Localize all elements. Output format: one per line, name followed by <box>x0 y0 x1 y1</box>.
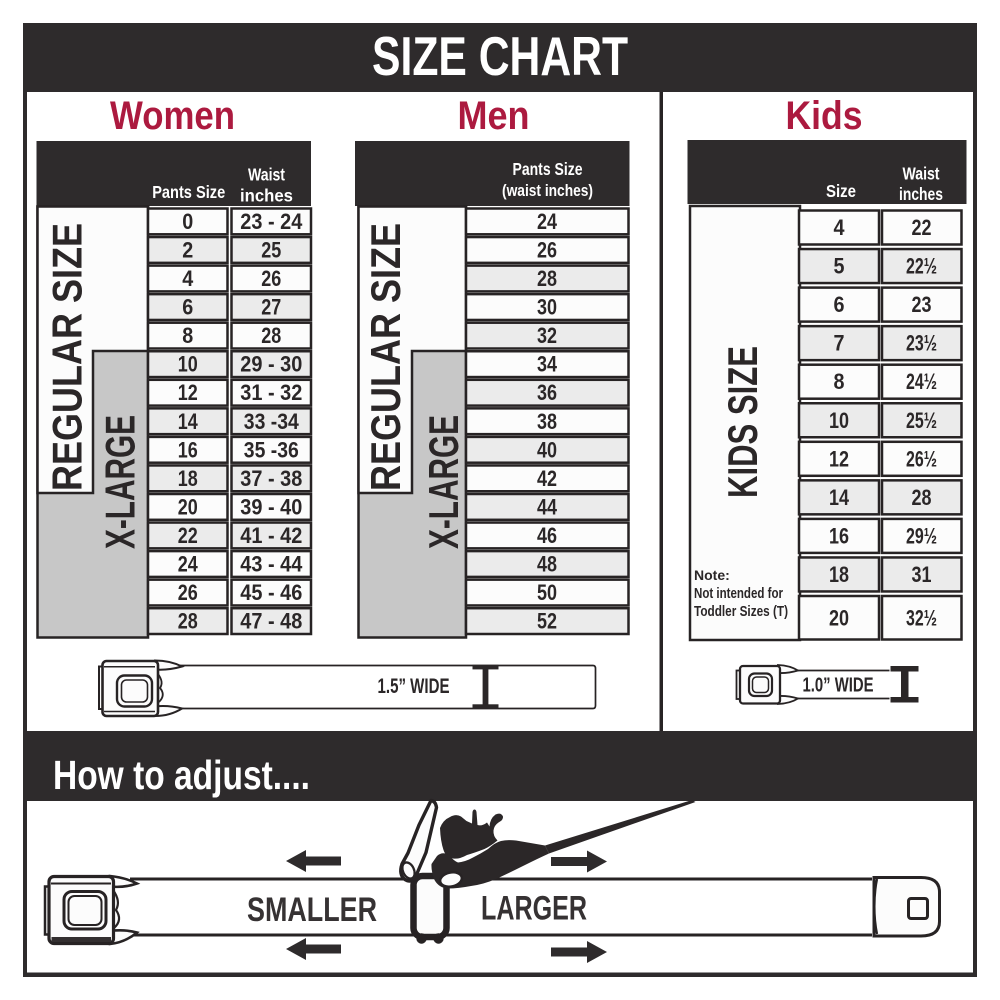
svg-text:How to adjust....: How to adjust.... <box>53 752 310 798</box>
svg-text:29 - 30: 29 - 30 <box>240 352 302 377</box>
svg-text:28: 28 <box>912 485 932 510</box>
svg-text:40: 40 <box>537 437 557 462</box>
svg-text:1.5” WIDE: 1.5” WIDE <box>378 675 450 698</box>
svg-text:22: 22 <box>912 215 932 240</box>
svg-text:Waist: Waist <box>248 165 285 185</box>
svg-text:16: 16 <box>829 523 849 548</box>
svg-text:7: 7 <box>834 331 845 356</box>
svg-text:35 -36: 35 -36 <box>244 437 299 462</box>
svg-text:18: 18 <box>178 466 198 491</box>
svg-text:6: 6 <box>834 292 845 317</box>
svg-text:SIZE CHART: SIZE CHART <box>372 25 628 87</box>
svg-text:LARGER: LARGER <box>481 890 587 928</box>
svg-text:8: 8 <box>182 323 193 348</box>
svg-text:25½: 25½ <box>906 408 937 433</box>
svg-text:REGULAR SIZE: REGULAR SIZE <box>44 223 91 491</box>
svg-text:42: 42 <box>537 466 557 491</box>
svg-text:23½: 23½ <box>906 331 937 356</box>
svg-text:25: 25 <box>261 237 281 262</box>
svg-text:37 - 38: 37 - 38 <box>240 466 302 491</box>
svg-text:X-LARGE: X-LARGE <box>97 415 144 549</box>
svg-text:Waist: Waist <box>903 164 940 184</box>
svg-text:29½: 29½ <box>906 523 937 548</box>
svg-text:28: 28 <box>537 266 557 291</box>
svg-text:10: 10 <box>829 408 849 433</box>
svg-text:Pants Size: Pants Size <box>513 159 583 179</box>
svg-text:52: 52 <box>537 609 557 634</box>
svg-text:X-LARGE: X-LARGE <box>420 415 467 549</box>
svg-text:47 - 48: 47 - 48 <box>240 609 302 634</box>
svg-text:36: 36 <box>537 380 557 405</box>
svg-text:inches: inches <box>899 184 943 204</box>
svg-text:1.0” WIDE: 1.0” WIDE <box>803 674 874 697</box>
svg-text:23: 23 <box>912 292 932 317</box>
svg-text:KIDS SIZE: KIDS SIZE <box>719 346 766 498</box>
svg-text:12: 12 <box>178 380 198 405</box>
svg-text:30: 30 <box>537 295 557 320</box>
svg-text:43 - 44: 43 - 44 <box>240 552 303 577</box>
svg-text:Women: Women <box>110 94 235 138</box>
svg-text:(waist inches): (waist inches) <box>502 181 593 200</box>
svg-text:44: 44 <box>537 494 558 519</box>
svg-text:4: 4 <box>834 215 846 240</box>
svg-text:2: 2 <box>182 237 193 262</box>
svg-text:REGULAR SIZE: REGULAR SIZE <box>362 223 409 491</box>
svg-text:24: 24 <box>178 552 199 577</box>
svg-text:12: 12 <box>829 446 849 471</box>
svg-text:10: 10 <box>178 352 198 377</box>
svg-text:31 - 32: 31 - 32 <box>240 380 302 405</box>
svg-text:27: 27 <box>261 295 281 320</box>
svg-text:5: 5 <box>834 254 845 279</box>
svg-text:32: 32 <box>537 323 557 348</box>
svg-text:6: 6 <box>182 295 193 320</box>
svg-text:39 - 40: 39 - 40 <box>240 494 302 519</box>
svg-text:41 - 42: 41 - 42 <box>240 523 302 548</box>
svg-text:26: 26 <box>261 266 281 291</box>
svg-text:SMALLER: SMALLER <box>247 891 377 929</box>
svg-text:0: 0 <box>182 209 193 234</box>
svg-text:26: 26 <box>178 580 198 605</box>
svg-text:48: 48 <box>537 552 557 577</box>
svg-text:4: 4 <box>182 266 194 291</box>
svg-text:Kids: Kids <box>786 94 863 138</box>
svg-text:inches: inches <box>240 186 293 206</box>
svg-text:Men: Men <box>458 94 530 138</box>
svg-text:20: 20 <box>829 605 849 630</box>
svg-text:46: 46 <box>537 523 557 548</box>
svg-text:26½: 26½ <box>906 446 937 471</box>
svg-text:16: 16 <box>178 437 198 462</box>
svg-text:Toddler Sizes (T): Toddler Sizes (T) <box>694 603 788 620</box>
svg-text:Pants Size: Pants Size <box>152 182 225 202</box>
svg-text:26: 26 <box>537 237 557 262</box>
svg-text:34: 34 <box>537 352 558 377</box>
svg-text:Note:: Note: <box>694 567 730 583</box>
svg-text:45 - 46: 45 - 46 <box>240 580 302 605</box>
svg-text:18: 18 <box>829 562 849 587</box>
svg-text:28: 28 <box>178 609 198 634</box>
svg-text:Size: Size <box>826 181 856 201</box>
svg-text:23 - 24: 23 - 24 <box>240 209 303 234</box>
svg-text:24: 24 <box>537 209 558 234</box>
svg-text:24½: 24½ <box>906 369 937 394</box>
svg-text:33 -34: 33 -34 <box>244 409 300 434</box>
svg-text:50: 50 <box>537 580 557 605</box>
svg-text:38: 38 <box>537 409 557 434</box>
svg-text:Not intended for: Not intended for <box>694 585 783 602</box>
svg-text:8: 8 <box>834 369 845 394</box>
svg-text:14: 14 <box>829 485 850 510</box>
svg-text:22: 22 <box>178 523 198 548</box>
svg-text:31: 31 <box>912 562 932 587</box>
svg-text:20: 20 <box>178 494 198 519</box>
svg-text:22½: 22½ <box>906 254 937 279</box>
svg-text:28: 28 <box>261 323 281 348</box>
svg-text:14: 14 <box>178 409 199 434</box>
svg-text:32½: 32½ <box>906 605 937 630</box>
